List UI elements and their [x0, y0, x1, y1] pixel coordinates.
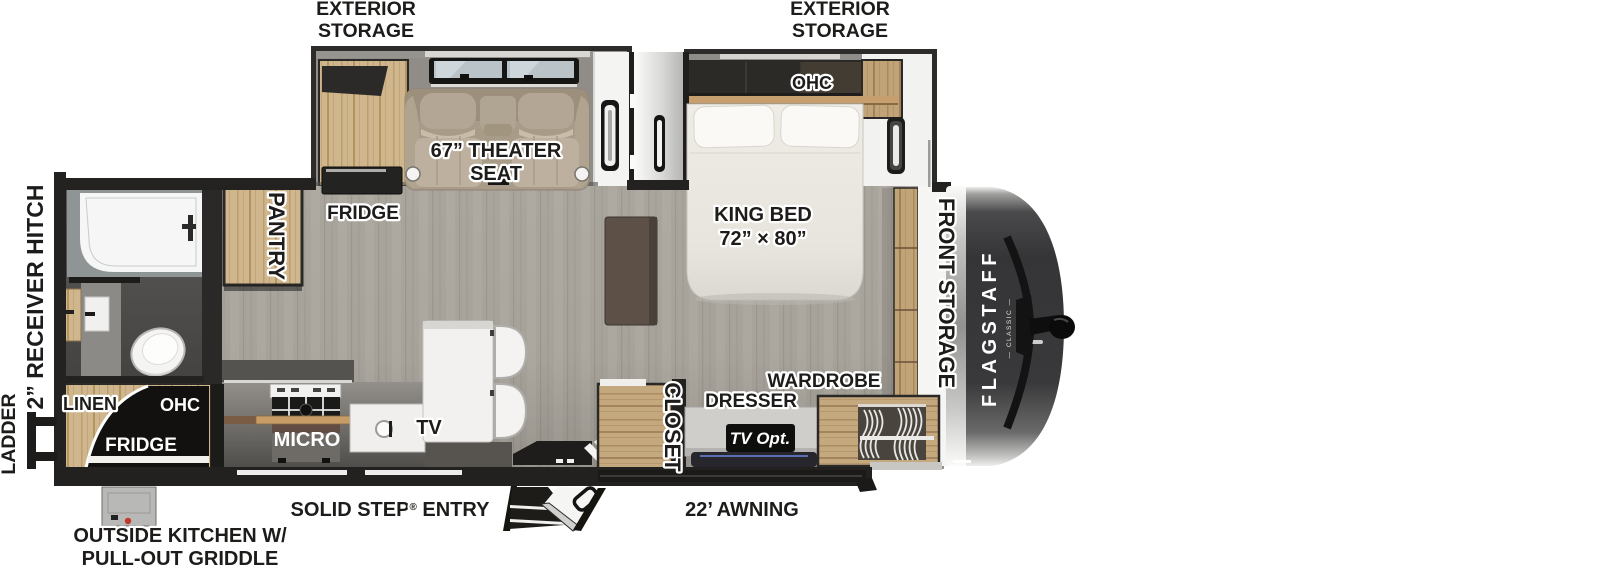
svg-text:PANTRY: PANTRY [264, 192, 289, 280]
svg-text:STORAGE: STORAGE [792, 20, 888, 42]
svg-text:FRONT STORAGE: FRONT STORAGE [934, 198, 959, 388]
svg-text:2” RECEIVER HITCH: 2” RECEIVER HITCH [22, 185, 48, 410]
svg-text:OHC: OHC [792, 73, 832, 93]
svg-text:SOLID STEP® ENTRY: SOLID STEP® ENTRY [291, 499, 491, 521]
svg-text:WARDROBE: WARDROBE [768, 371, 881, 392]
svg-text:STORAGE: STORAGE [318, 20, 414, 42]
svg-text:72” × 80”: 72” × 80” [719, 228, 806, 250]
svg-text:TV Opt.: TV Opt. [730, 429, 790, 448]
svg-text:67” THEATER: 67” THEATER [431, 140, 562, 162]
svg-text:SEAT: SEAT [470, 163, 522, 185]
svg-text:CLOSET: CLOSET [660, 382, 685, 472]
svg-text:MICRO: MICRO [274, 429, 341, 451]
svg-text:FLAGSTAFF: FLAGSTAFF [979, 249, 1001, 407]
svg-text:PULL-OUT GRIDDLE: PULL-OUT GRIDDLE [82, 548, 279, 570]
svg-text:OHC: OHC [160, 395, 200, 415]
svg-text:LINEN: LINEN [63, 394, 117, 414]
svg-text:EXTERIOR: EXTERIOR [316, 0, 416, 20]
svg-text:EXTERIOR: EXTERIOR [790, 0, 890, 20]
svg-text:OUTSIDE KITCHEN W/: OUTSIDE KITCHEN W/ [73, 525, 287, 547]
svg-text:— CLASSIC —: — CLASSIC — [1006, 298, 1013, 359]
svg-text:22’ AWNING: 22’ AWNING [685, 499, 799, 521]
svg-text:TV: TV [416, 417, 442, 439]
svg-text:LADDER: LADDER [0, 393, 20, 474]
svg-text:FRIDGE: FRIDGE [105, 435, 177, 456]
svg-text:DRESSER: DRESSER [705, 391, 797, 412]
svg-text:KING BED: KING BED [714, 204, 812, 226]
svg-text:FRIDGE: FRIDGE [327, 203, 399, 224]
